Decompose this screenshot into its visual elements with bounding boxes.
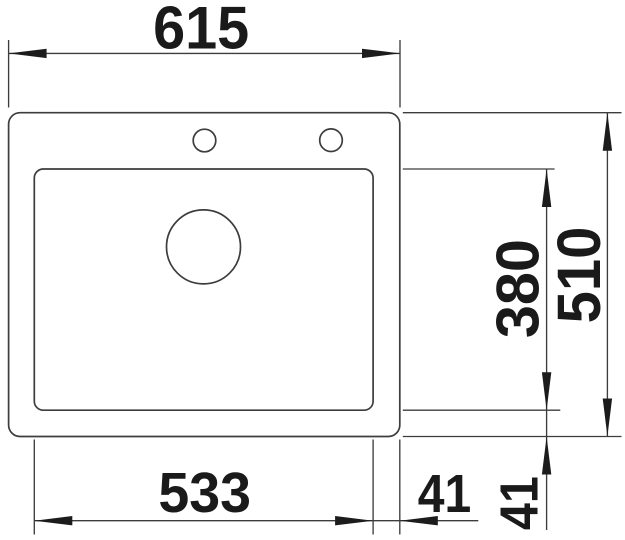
svg-text:380: 380	[484, 239, 551, 338]
svg-text:615: 615	[153, 0, 249, 62]
svg-text:41: 41	[488, 476, 549, 530]
svg-text:510: 510	[545, 227, 614, 324]
svg-text:41: 41	[418, 464, 471, 524]
svg-text:533: 533	[158, 460, 251, 524]
